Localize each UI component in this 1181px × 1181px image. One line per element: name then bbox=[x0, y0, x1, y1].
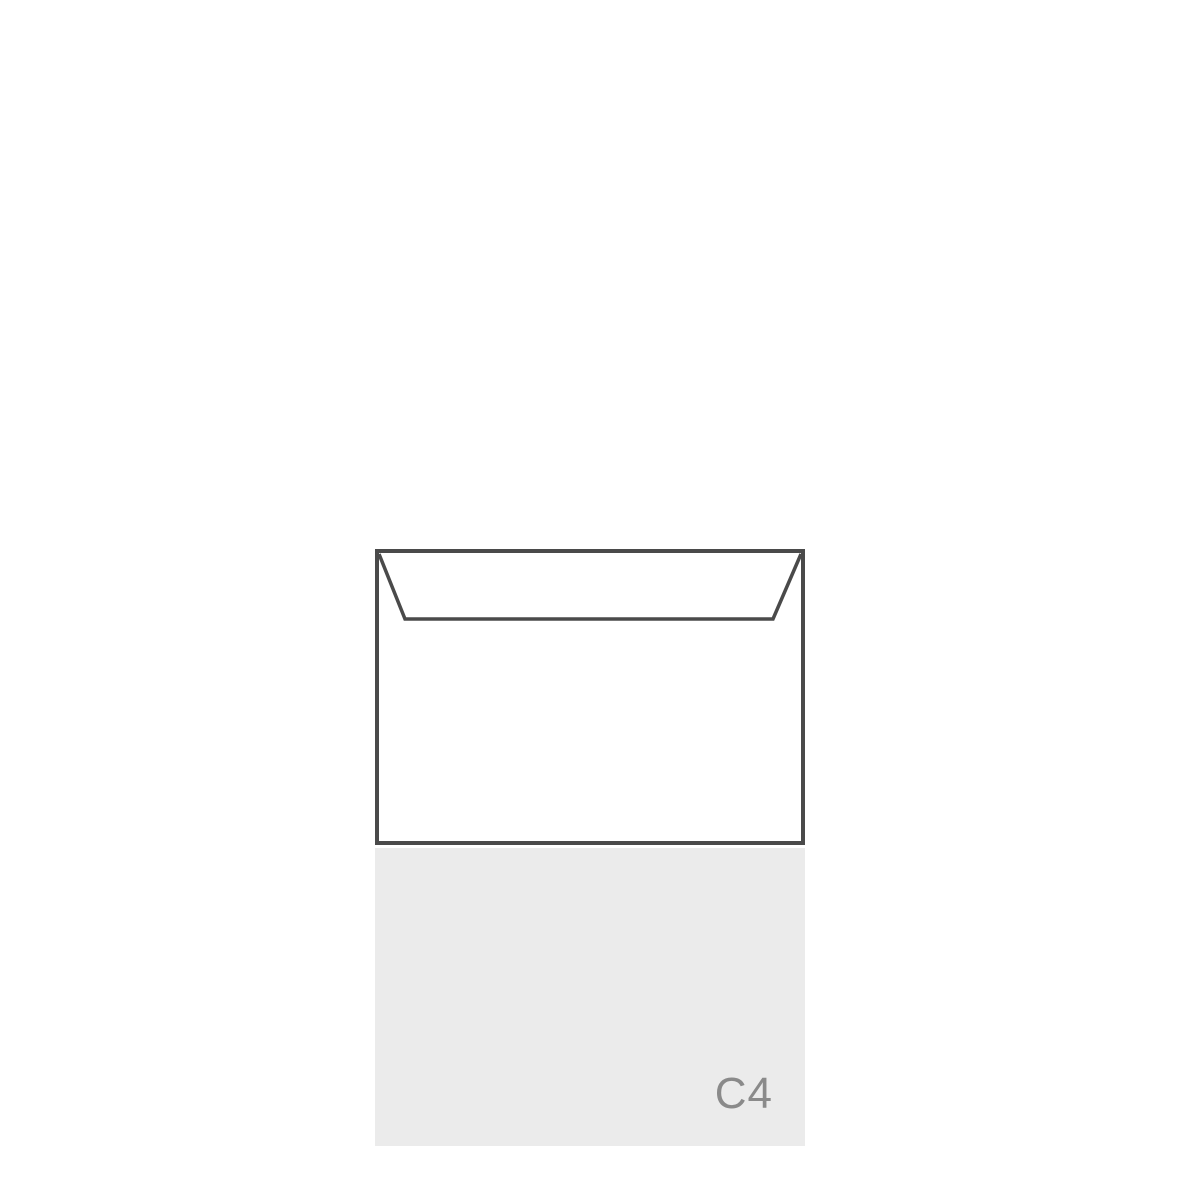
canvas: C4 bbox=[0, 0, 1181, 1181]
envelope-flap bbox=[379, 554, 801, 619]
envelope-illustration bbox=[375, 549, 805, 845]
envelope-size-label: C4 bbox=[715, 1072, 773, 1116]
envelope-icon bbox=[375, 549, 805, 845]
paper-sheet: C4 bbox=[375, 848, 805, 1146]
